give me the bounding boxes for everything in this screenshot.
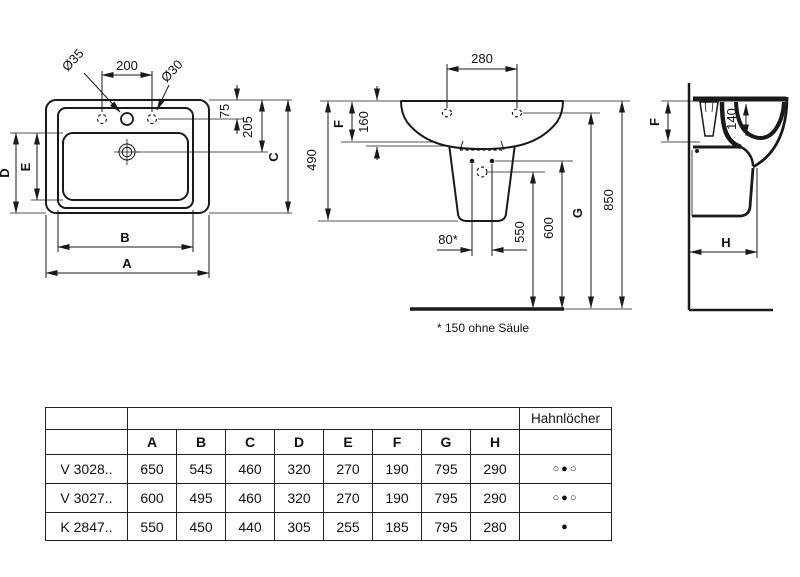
value-cell: 550 xyxy=(128,513,177,541)
dim-label-160: 160 xyxy=(356,111,371,133)
dim-label-dia35: Ø35 xyxy=(59,46,87,74)
value-cell: 795 xyxy=(422,455,471,484)
tap-hole-right-icon xyxy=(148,115,157,124)
value-cell: 185 xyxy=(373,513,422,541)
value-cell: 600 xyxy=(128,484,177,513)
fixing-point-right-icon xyxy=(490,159,495,164)
dim-label-75: 75 xyxy=(217,104,232,118)
tap-hole-left-icon xyxy=(98,115,107,124)
value-cell: 305 xyxy=(275,513,324,541)
dim-label-E: E xyxy=(18,162,33,171)
col-header-E: E xyxy=(324,430,373,455)
hahnloecher-header: Hahnlöcher xyxy=(520,408,612,430)
dim-label-H: H xyxy=(721,235,730,250)
dim-label-B: B xyxy=(120,230,129,245)
col-header-D: D xyxy=(275,430,324,455)
value-cell: 650 xyxy=(128,455,177,484)
value-cell: 450 xyxy=(177,513,226,541)
model-label: V 3028.. xyxy=(46,455,128,484)
value-cell: 280 xyxy=(471,513,520,541)
value-cell: 270 xyxy=(324,455,373,484)
col-header-C: C xyxy=(226,430,275,455)
value-cell: 795 xyxy=(422,513,471,541)
table-row: V 3027.. 600 495 460 320 270 190 795 290… xyxy=(46,484,612,513)
fixing-point-left-icon xyxy=(470,159,475,164)
table-header-spacer xyxy=(128,408,520,430)
dim-label-80: 80* xyxy=(438,232,458,247)
col-header-G: G xyxy=(422,430,471,455)
col-header-B: B xyxy=(177,430,226,455)
basin-section xyxy=(693,97,787,167)
wall-fixing-dot xyxy=(695,149,699,153)
table-empty-cell xyxy=(46,430,128,455)
table-corner-cell xyxy=(46,408,128,430)
value-cell: 460 xyxy=(226,455,275,484)
table-header-row-1: Hahnlöcher xyxy=(46,408,612,430)
col-header-A: A xyxy=(128,430,177,455)
dim-label-dia30: Ø30 xyxy=(158,57,186,85)
dim-label-200: 200 xyxy=(116,58,138,73)
dim-label-F-front: F xyxy=(331,120,346,128)
dim-label-D: D xyxy=(0,168,12,177)
semi-pedestal-outline xyxy=(449,144,515,221)
hahnloecher-symbol: ○●○ xyxy=(520,455,612,484)
value-cell: 190 xyxy=(373,484,422,513)
top-view: Ø35 200 Ø30 75 205 C D E B A xyxy=(0,46,292,278)
value-cell: 320 xyxy=(275,484,324,513)
front-view: 280 F 160 490 80* 550 600 G 850 * 150 oh… xyxy=(304,51,632,335)
table-row: K 2847.. 550 450 440 305 255 185 795 280… xyxy=(46,513,612,541)
value-cell: 290 xyxy=(471,484,520,513)
value-cell: 290 xyxy=(471,455,520,484)
dim-label-C: C xyxy=(266,152,281,162)
technical-drawing-sheet: Ø35 200 Ø30 75 205 C D E B A xyxy=(0,0,800,577)
dimensions-table: Hahnlöcher A B C D E F G H V 3028.. 650 … xyxy=(45,407,612,541)
model-label: V 3027.. xyxy=(46,484,128,513)
dim-label-550: 550 xyxy=(512,221,527,243)
washbasin-drawing: Ø35 200 Ø30 75 205 C D E B A xyxy=(0,0,800,400)
dim-label-F-side: F xyxy=(647,118,662,126)
pedestal-section xyxy=(692,168,753,216)
value-cell: 320 xyxy=(275,455,324,484)
table-row: V 3028.. 650 545 460 320 270 190 795 290… xyxy=(46,455,612,484)
tap-hole-section xyxy=(700,102,718,136)
hahnloecher-symbol: ● xyxy=(520,513,612,541)
basin-bowl xyxy=(63,133,188,200)
value-cell: 795 xyxy=(422,484,471,513)
dim-label-490: 490 xyxy=(304,149,319,171)
footnote: * 150 ohne Säule xyxy=(437,321,529,335)
model-label: K 2847.. xyxy=(46,513,128,541)
value-cell: 440 xyxy=(226,513,275,541)
table-header-row-2: A B C D E F G H xyxy=(46,430,612,455)
value-cell: 495 xyxy=(177,484,226,513)
tap-hole-center-icon xyxy=(121,113,133,125)
value-cell: 270 xyxy=(324,484,373,513)
dim-label-140: 140 xyxy=(724,108,739,130)
value-cell: 460 xyxy=(226,484,275,513)
col-header-F: F xyxy=(373,430,422,455)
value-cell: 255 xyxy=(324,513,373,541)
value-cell: 190 xyxy=(373,455,422,484)
dim-label-280: 280 xyxy=(471,51,493,66)
table-empty-cell xyxy=(520,430,612,455)
dim-label-205: 205 xyxy=(240,116,255,138)
dim-label-G: G xyxy=(570,208,585,218)
dim-label-850: 850 xyxy=(601,189,616,211)
dim-label-600: 600 xyxy=(541,217,556,239)
dim-label-A: A xyxy=(122,256,132,271)
top-view-dimension-lines xyxy=(10,71,292,278)
side-view: F 140 H xyxy=(647,83,787,310)
col-header-H: H xyxy=(471,430,520,455)
value-cell: 545 xyxy=(177,455,226,484)
hahnloecher-symbol: ○●○ xyxy=(520,484,612,513)
